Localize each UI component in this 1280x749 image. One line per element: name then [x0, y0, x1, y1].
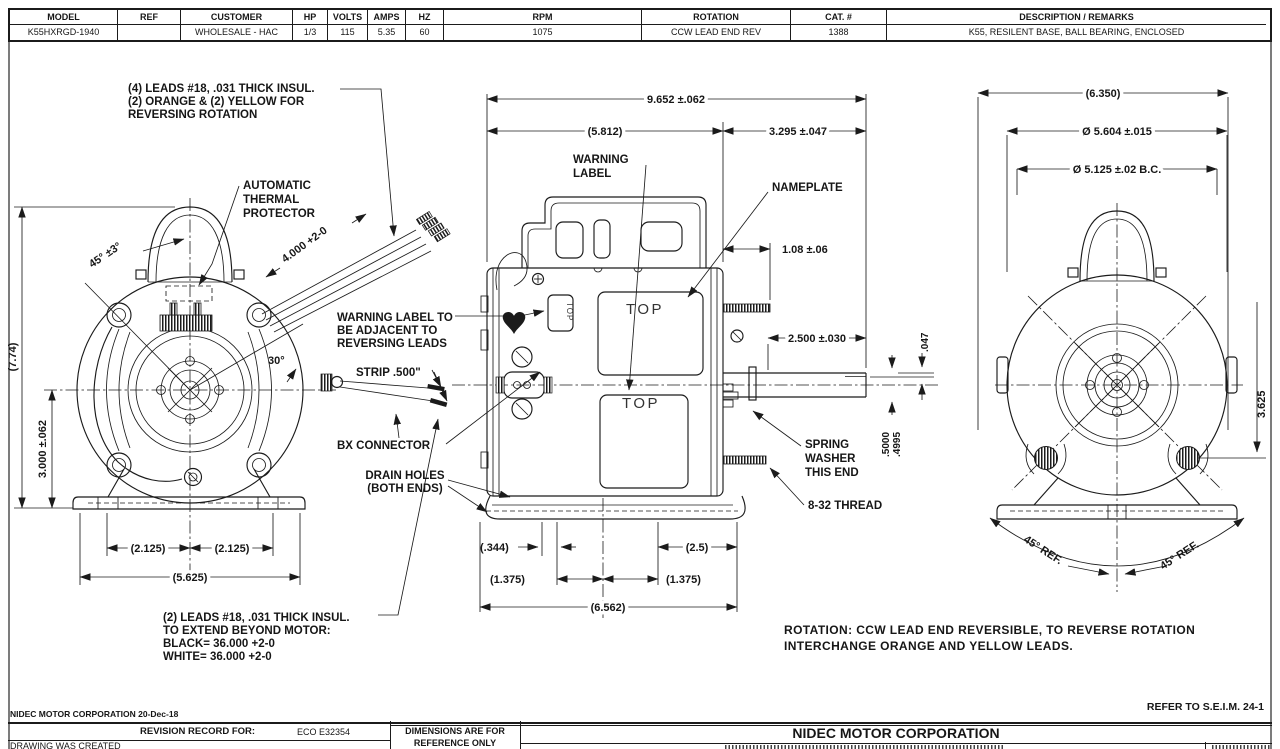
col-model: MODEL: [10, 10, 117, 25]
dim-2125-right: (2.125): [215, 543, 250, 555]
footer-divider-right: [520, 743, 1272, 744]
dim-6562: (6.562): [591, 602, 626, 614]
dim-5604: Ø 5.604 ±.015: [1082, 126, 1152, 138]
rotation-note: ROTATION: CCW LEAD END REVERSIBLE, TO RE…: [784, 623, 1195, 653]
label-spring-1: SPRING: [805, 439, 849, 451]
footer-vsep-3: [1205, 742, 1206, 749]
note-leads-top-1: (4) LEADS #18, .031 THICK INSUL.: [128, 83, 315, 95]
spec-table: MODEL REF CUSTOMER HP VOLTS AMPS HZ RPM …: [8, 8, 1272, 42]
label-drain-1: DRAIN HOLES: [365, 470, 445, 482]
top-marking-small: TOP: [565, 302, 574, 321]
col-hp: HP: [292, 10, 327, 25]
footer-dims-reference-1: DIMENSIONS ARE FOR: [390, 726, 520, 736]
footer-company-title: NIDEC MOTOR CORPORATION: [520, 725, 1272, 741]
val-customer: WHOLESALE - HAC: [180, 25, 292, 40]
top-marking-lower: TOP: [622, 395, 660, 412]
val-rpm: 1075: [443, 25, 641, 40]
footer-drawing-created: DRAWING WAS CREATED: [10, 741, 121, 749]
label-thermal-1: AUTOMATIC: [243, 180, 311, 192]
dim-4000: 4.000 +2-0: [280, 225, 330, 266]
label-bx-connector: BX CONNECTOR: [337, 440, 431, 452]
top-marking-upper: TOP: [626, 301, 664, 318]
dim-5812: (5.812): [588, 126, 623, 138]
label-spring-2: WASHER: [805, 453, 856, 465]
val-amps: 5.35: [367, 25, 405, 40]
drawing-sheet: (4) LEADS #18, .031 THICK INSUL. (2) ORA…: [0, 0, 1280, 749]
dim-6350: (6.350): [1086, 88, 1121, 100]
col-cat: CAT. #: [790, 10, 886, 25]
dim-3295: 3.295 ±.047: [769, 126, 827, 138]
label-warning-2: LABEL: [573, 168, 611, 180]
dim-047: .047: [920, 332, 931, 352]
dim-30deg: 30°: [268, 355, 285, 367]
dim-344: (.344): [480, 542, 509, 554]
footer-company-date: NIDEC MOTOR CORPORATION 20-Dec-18: [10, 709, 178, 719]
note-leads-bottom-4: WHITE= 36.000 +2-0: [163, 651, 272, 663]
label-strip: STRIP .500": [356, 367, 421, 379]
dim-45ref-right: 45° REF.: [1158, 539, 1201, 573]
dim-25: (2.5): [686, 542, 709, 554]
footer-revision-record: REVISION RECORD FOR:: [140, 726, 255, 737]
dim-shaft-dia-1: .5000: [881, 432, 892, 457]
dim-774: (7.74): [7, 342, 19, 371]
note-leads-top-3: REVERSING ROTATION: [128, 109, 257, 121]
val-description: K55, RESILENT BASE, BALL BEARING, ENCLOS…: [886, 25, 1266, 40]
col-description: DESCRIPTION / REMARKS: [886, 10, 1266, 25]
right-view: (6.350) Ø 5.604 ±.015 Ø 5.125 ±.02 B.C. …: [978, 88, 1268, 592]
note-leads-bottom-3: BLACK= 36.000 +2-0: [163, 638, 275, 650]
val-hz: 60: [405, 25, 443, 40]
dim-1375-left: (1.375): [490, 574, 525, 586]
note-warn-adjacent-1: WARNING LABEL TO: [337, 312, 453, 324]
note-rotation-2: INTERCHANGE ORANGE AND YELLOW LEADS.: [784, 639, 1073, 653]
note-warn-adjacent-3: REVERSING LEADS: [337, 338, 447, 350]
dim-108: 1.08 ±.06: [782, 244, 828, 256]
label-thermal-2: THERMAL: [243, 194, 299, 206]
dim-2500: 2.500 ±.030: [788, 333, 846, 345]
label-warning-1: WARNING: [573, 154, 629, 166]
spec-table-value-row: K55HXRGD-1940 WHOLESALE - HAC 1/3 115 5.…: [10, 25, 1270, 40]
spec-table-header-row: MODEL REF CUSTOMER HP VOLTS AMPS HZ RPM …: [10, 10, 1270, 25]
label-drain-2: (BOTH ENDS): [367, 483, 443, 495]
val-model: K55HXRGD-1940: [10, 25, 117, 40]
val-hp: 1/3: [292, 25, 327, 40]
footer-dims-reference-2: REFERENCE ONLY: [390, 738, 520, 748]
val-volts: 115: [327, 25, 367, 40]
footer-divider-top: [8, 722, 1272, 724]
note-leads-bottom-1: (2) LEADS #18, .031 THICK INSUL.: [163, 612, 350, 624]
note-leads-top-2: (2) ORANGE & (2) YELLOW FOR: [128, 96, 305, 108]
col-amps: AMPS: [367, 10, 405, 25]
label-thermal-3: PROTECTOR: [243, 208, 316, 220]
footer-clipped-text-right: [1212, 745, 1270, 749]
drawing-canvas: (4) LEADS #18, .031 THICK INSUL. (2) ORA…: [0, 0, 1280, 749]
col-customer: CUSTOMER: [180, 10, 292, 25]
dim-2125-left: (2.125): [131, 543, 166, 555]
col-rotation: ROTATION: [641, 10, 790, 25]
dim-3000: 3.000 ±.062: [37, 420, 49, 478]
val-rotation: CCW LEAD END REV: [641, 25, 790, 40]
col-hz: HZ: [405, 10, 443, 25]
col-ref: REF: [117, 10, 180, 25]
footer-eco-number: ECO E32354: [297, 727, 350, 737]
note-rotation-1: ROTATION: CCW LEAD END REVERSIBLE, TO RE…: [784, 623, 1195, 637]
val-ref: [117, 25, 180, 40]
dim-1375-right: (1.375): [666, 574, 701, 586]
dim-5125: Ø 5.125 ±.02 B.C.: [1073, 164, 1162, 176]
col-rpm: RPM: [443, 10, 641, 25]
dim-3625: 3.625: [1256, 390, 1268, 418]
col-volts: VOLTS: [327, 10, 367, 25]
note-warn-adjacent-2: BE ADJACENT TO: [337, 325, 437, 337]
label-thread: 8-32 THREAD: [808, 500, 882, 512]
dim-45deg: 45° ±3°: [87, 240, 124, 270]
val-cat: 1388: [790, 25, 886, 40]
label-nameplate: NAMEPLATE: [772, 182, 843, 194]
footer-refer-note: REFER TO S.E.I.M. 24-1: [1147, 701, 1264, 713]
note-leads-bottom-2: TO EXTEND BEYOND MOTOR:: [163, 625, 331, 637]
dim-shaft-dia-2: .4995: [892, 432, 903, 457]
dim-5625: (5.625): [173, 572, 208, 584]
dim-9652: 9.652 ±.062: [647, 94, 705, 106]
dim-45ref-left: 45° REF.: [1021, 533, 1064, 567]
footer-clipped-text-left: [725, 745, 1005, 749]
label-spring-3: THIS END: [805, 467, 859, 479]
